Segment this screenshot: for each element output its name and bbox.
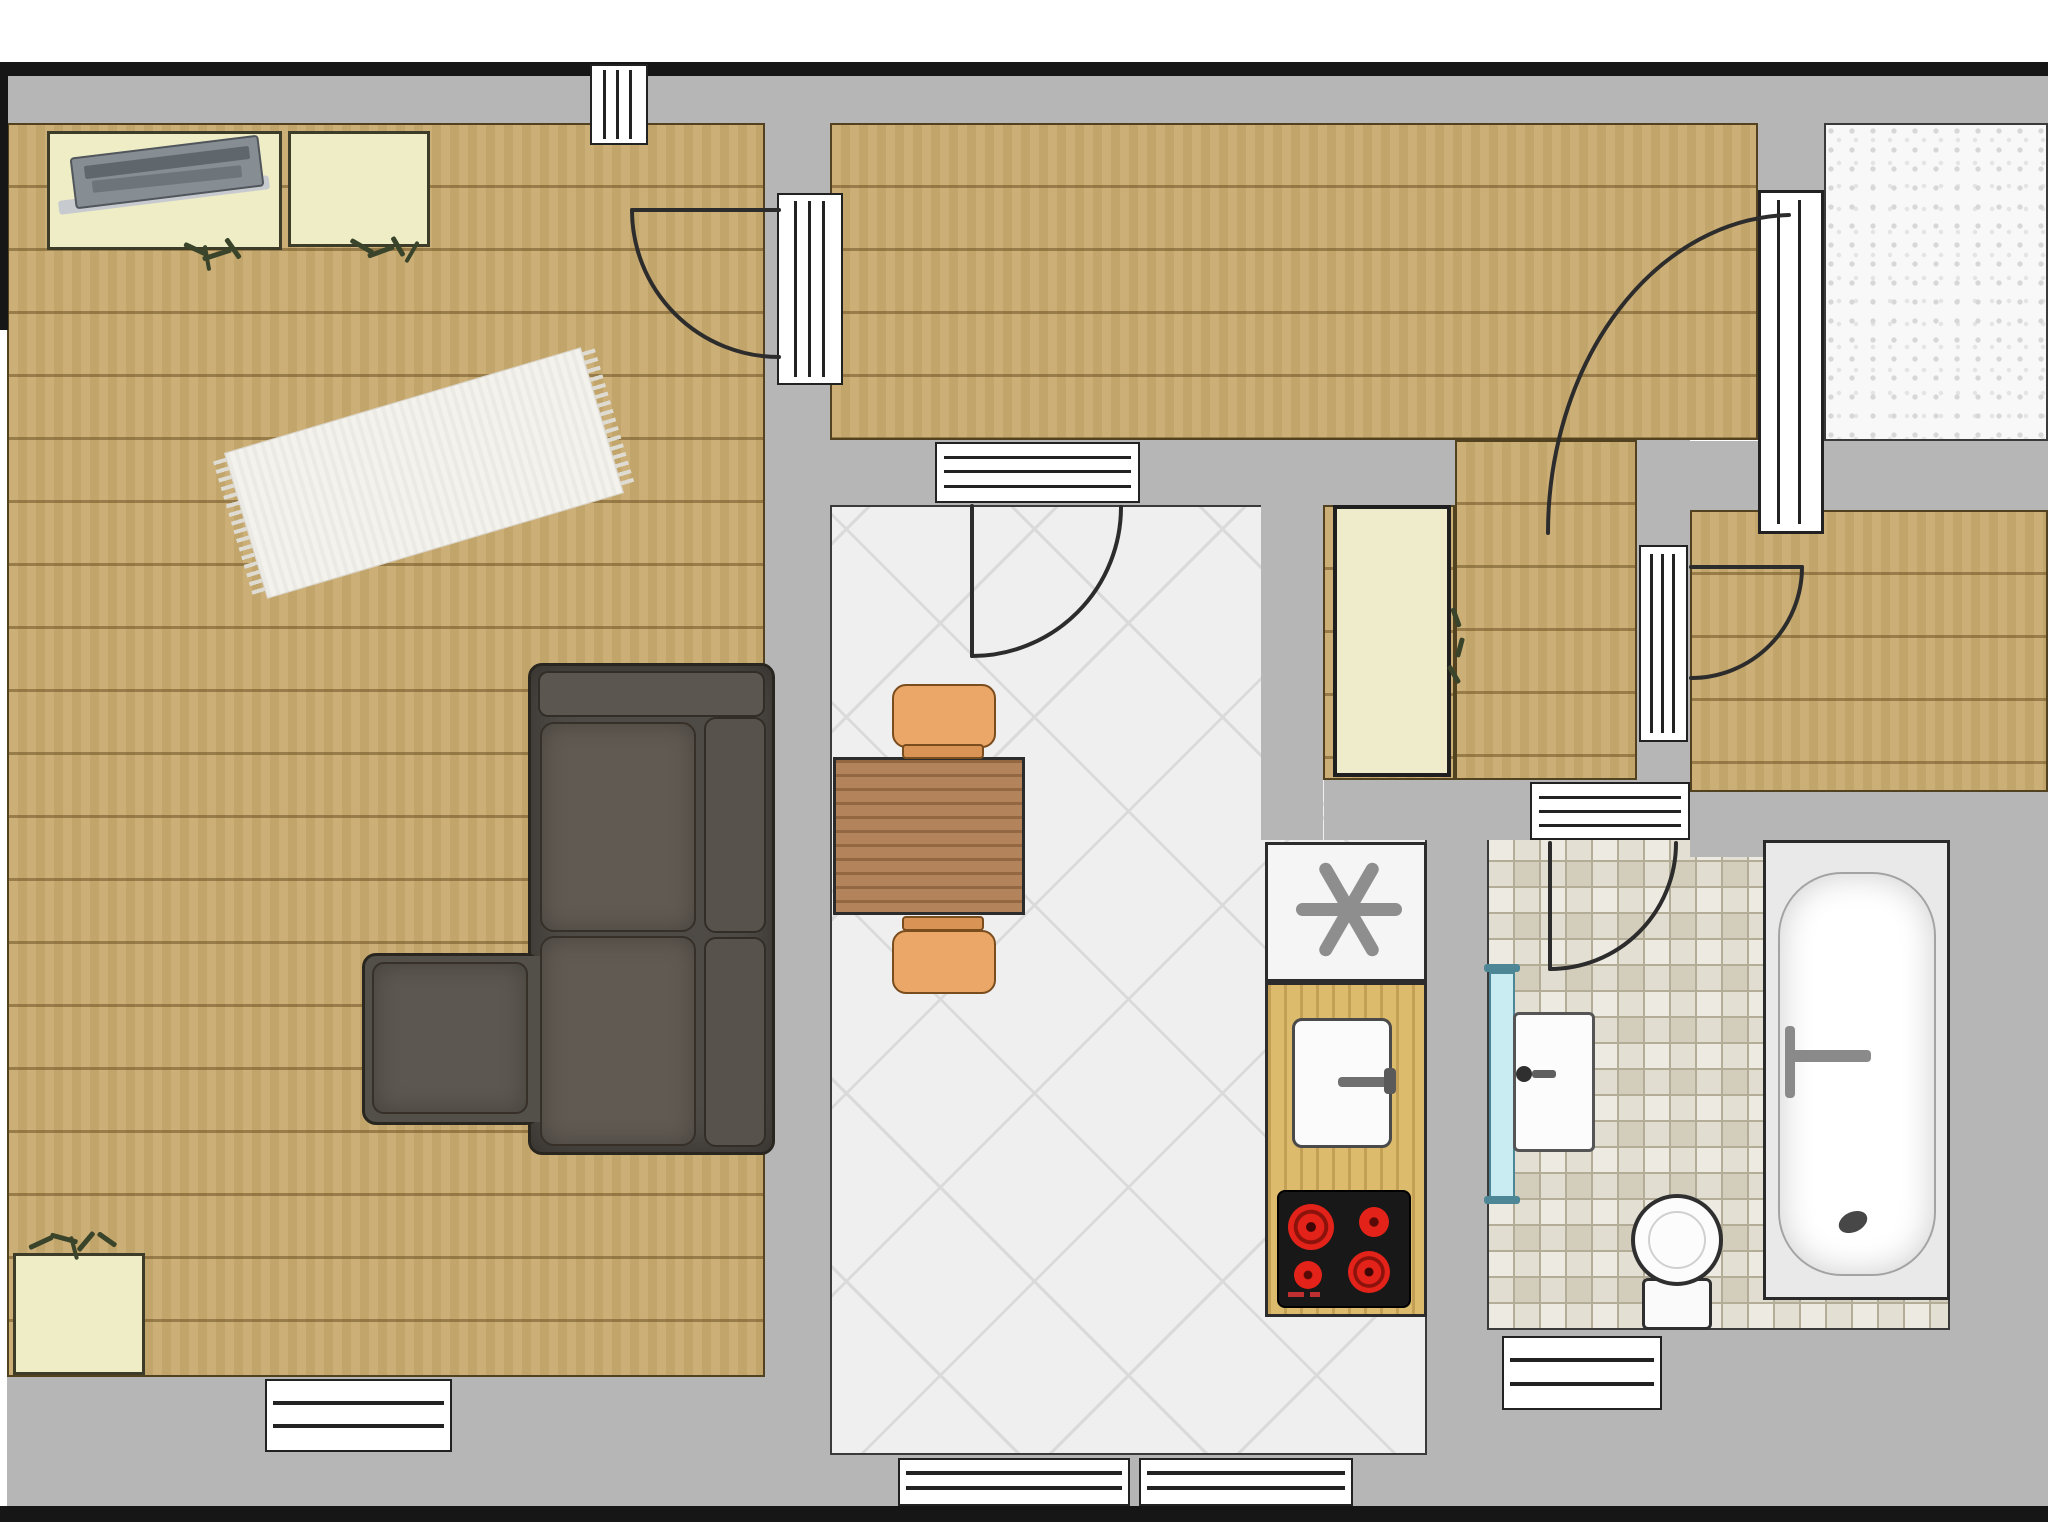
door-frame-living-line [794, 201, 797, 377]
sofa-seat-cushion [540, 722, 696, 932]
sink-faucet-knob [1384, 1068, 1396, 1094]
vent-top-wall-line [629, 70, 632, 139]
radiator-cap [1484, 964, 1520, 972]
door-frame-living-line [822, 201, 825, 377]
border-bottom [0, 1506, 2048, 1522]
door-frame-kitchen-line [944, 456, 1131, 459]
door-frame-bedroom-line [1650, 554, 1653, 733]
wall-entrance-stub [1758, 123, 1824, 190]
hallway-floor [830, 123, 1758, 440]
vent-top-wall-line [603, 70, 606, 139]
window-bath-bottom-line [1510, 1382, 1654, 1386]
window-kitchen-left-line [906, 1471, 1122, 1475]
door-frame-bedroom-line [1672, 554, 1675, 733]
sofa-side-cushion [704, 937, 766, 1147]
plant-cabinet [13, 1253, 145, 1375]
wall-bedroom-north [1690, 441, 2048, 510]
burner [1294, 1261, 1322, 1289]
sofa-chaise-cushion [372, 962, 528, 1114]
burner [1359, 1207, 1389, 1237]
door-frame-bedroom-line [1661, 554, 1664, 733]
tub-tap-vertical [1785, 1026, 1795, 1098]
window-kitchen-left-line [906, 1486, 1122, 1490]
sofa-side-cushion [704, 717, 766, 933]
entrance-door-slab [1758, 190, 1824, 534]
window-kitchen-right [1139, 1458, 1353, 1506]
wall-bath-right [1950, 840, 2048, 1508]
chair-back [902, 744, 984, 759]
hallway-lower-arm-floor [1455, 440, 1637, 780]
towel-radiator [1489, 972, 1515, 1198]
window-living-bottom-line [273, 1424, 444, 1428]
bathroom-basin [1513, 1012, 1595, 1152]
sideboard-right [288, 131, 430, 247]
entrance-door-slab-line [1798, 200, 1801, 524]
toilet-bowl-inner [1648, 1211, 1706, 1269]
hall-cabinet [1333, 505, 1451, 777]
tub-tap-horizontal [1785, 1050, 1871, 1062]
entrance-door-slab-line [1777, 200, 1780, 524]
balcony-floor [1824, 123, 2048, 441]
vent-top-wall-line [616, 70, 619, 139]
door-frame-living-line [808, 201, 811, 377]
border-left [0, 62, 8, 330]
window-living-bottom-line [273, 1401, 444, 1405]
wall-mid-vertical [1261, 505, 1323, 840]
door-frame-kitchen-line [944, 485, 1131, 488]
window-living-bottom [265, 1379, 452, 1452]
sofa-back-cushion [538, 671, 765, 717]
door-frame-bath-line [1539, 810, 1681, 813]
window-kitchen-right-line [1147, 1471, 1345, 1475]
bedroom-floor [1690, 510, 2048, 792]
wall-top [7, 76, 2048, 123]
burner [1348, 1251, 1390, 1293]
window-bath-bottom [1502, 1336, 1662, 1410]
floor-plan [0, 0, 2048, 1536]
window-bath-bottom-line [1510, 1358, 1654, 1362]
burner [1288, 1204, 1334, 1250]
stove-label [1288, 1292, 1304, 1297]
window-kitchen-right-line [1147, 1486, 1345, 1490]
door-frame-kitchen-line [944, 470, 1131, 473]
chair-seat [892, 684, 996, 748]
dining-table [833, 757, 1025, 915]
border-top [0, 62, 2048, 76]
window-kitchen-left [898, 1458, 1130, 1506]
door-frame-bath-line [1539, 796, 1681, 799]
stove-label [1310, 1292, 1320, 1297]
chair-back [902, 916, 984, 931]
basin-tap-dot [1516, 1066, 1532, 1082]
wall-bath-left [1427, 840, 1487, 1330]
vent-top-wall [590, 64, 648, 145]
basin-tap-bar [1532, 1070, 1556, 1078]
sofa-seat-cushion [540, 936, 696, 1146]
door-frame-bath-line [1539, 824, 1681, 827]
chair-seat [892, 930, 996, 994]
wall-kitchen-top [830, 440, 1455, 505]
